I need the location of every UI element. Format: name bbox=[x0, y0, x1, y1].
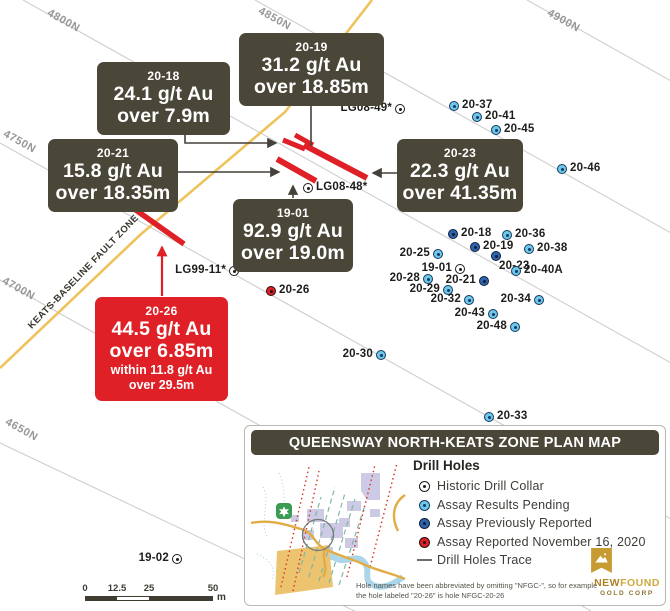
callout-within-grade: within 11.8 g/t Au bbox=[98, 363, 225, 379]
scale-segment bbox=[117, 596, 149, 601]
legend-item-label: Assay Previously Reported bbox=[437, 516, 592, 530]
legend-title: QUEENSWAY NORTH-KEATS ZONE PLAN MAP bbox=[251, 430, 659, 455]
drill-hole-label: 20-41 bbox=[485, 110, 515, 122]
drill-hole-label: 20-40A bbox=[524, 264, 563, 276]
pending-dot-icon bbox=[419, 500, 430, 511]
scale-tick: 12.5 bbox=[108, 583, 127, 594]
inset-highway-marker bbox=[276, 503, 292, 519]
drill-hole-marker-icon bbox=[266, 286, 276, 296]
legend-icon-cell bbox=[411, 536, 437, 548]
drill-hole-label: 19-02 bbox=[139, 552, 169, 564]
drill-hole-marker-icon bbox=[470, 242, 480, 252]
trace-line-icon bbox=[417, 559, 432, 561]
drill-hole-label: 20-18 bbox=[461, 227, 491, 239]
legend-icon-cell bbox=[411, 517, 437, 529]
legend-icon-cell bbox=[411, 499, 437, 511]
callout-hole-id: 20-23 bbox=[400, 146, 520, 160]
scale-tick: 0 bbox=[82, 583, 87, 594]
callout-interval: over 18.85m bbox=[242, 77, 381, 99]
drill-hole-marker-icon bbox=[491, 125, 501, 135]
legend-note: Hole names have been abbreviated by omit… bbox=[356, 581, 606, 601]
callout-interval: over 7.9m bbox=[100, 106, 227, 128]
scale-segment bbox=[149, 596, 213, 601]
callout-grade: 44.5 g/t Au bbox=[98, 319, 225, 341]
drill-hole-marker-icon bbox=[455, 264, 465, 274]
drill-hole-label: 19-01 bbox=[422, 262, 452, 274]
callout-within-interval: over 29.5m bbox=[98, 378, 225, 394]
drill-hole-marker-icon bbox=[510, 322, 520, 332]
drill-hole-marker-icon bbox=[433, 249, 443, 259]
legend-item-label: Drill Holes Trace bbox=[437, 553, 532, 567]
drill-hole-label: 20-48 bbox=[477, 320, 507, 332]
drill-hole-label: 20-34 bbox=[501, 293, 531, 305]
legend-item-reported: Assay Previously Reported bbox=[411, 514, 661, 533]
drill-hole-marker-icon bbox=[448, 229, 458, 239]
legend-panel: QUEENSWAY NORTH-KEATS ZONE PLAN MAP bbox=[244, 425, 666, 606]
callout-interval: over 18.35m bbox=[51, 183, 175, 205]
callout-20-21: 20-2115.8 g/t Auover 18.35m bbox=[48, 139, 178, 212]
callout-hole-id: 20-18 bbox=[100, 69, 227, 83]
redlegend-dot-icon bbox=[419, 537, 430, 548]
drill-hole-label: 20-26 bbox=[279, 284, 309, 296]
drill-hole-marker-icon bbox=[534, 295, 544, 305]
drill-hole-marker-icon bbox=[479, 276, 489, 286]
drill-hole-marker-icon bbox=[172, 554, 182, 564]
callout-hole-id: 19-01 bbox=[236, 206, 350, 220]
drill-hole-label: 20-45 bbox=[504, 123, 534, 135]
drill-hole-marker-icon bbox=[502, 230, 512, 240]
drill-hole-marker-icon bbox=[395, 104, 405, 114]
legend-icon-cell bbox=[411, 480, 437, 492]
callout-interval: over 41.35m bbox=[400, 183, 520, 205]
callout-grade: 22.3 g/t Au bbox=[400, 161, 520, 183]
drill-hole-label: 20-38 bbox=[537, 242, 567, 254]
legend-note-line2: the hole labeled "20-26" is hole NFGC-20… bbox=[356, 591, 606, 601]
logo-name-light: FOUND bbox=[620, 577, 660, 589]
callout-20-26: 20-2644.5 g/t Auover 6.85mwithin 11.8 g/… bbox=[95, 297, 228, 401]
drill-hole-marker-icon bbox=[488, 309, 498, 319]
reported-dot-icon bbox=[419, 518, 430, 529]
callout-grade: 92.9 g/t Au bbox=[236, 221, 350, 243]
historic-dot-icon bbox=[419, 481, 430, 492]
legend-item-pending: Assay Results Pending bbox=[411, 496, 661, 515]
drill-hole-label: 20-32 bbox=[431, 293, 461, 305]
legend-note-line1: Hole names have been abbreviated by omit… bbox=[356, 581, 606, 591]
drill-hole-label: LG08-48* bbox=[316, 181, 367, 193]
scale-bar-segments bbox=[85, 596, 213, 601]
legend-item-label: Assay Results Pending bbox=[437, 498, 570, 512]
legend-item-label: Assay Reported November 16, 2020 bbox=[437, 535, 646, 549]
callout-19-01: 19-0192.9 g/t Auover 19.0m bbox=[233, 199, 353, 272]
callout-hole-id: 20-19 bbox=[242, 40, 381, 54]
drill-hole-marker-icon bbox=[303, 183, 313, 193]
callout-20-19: 20-1931.2 g/t Auover 18.85m bbox=[239, 33, 384, 106]
drill-hole-marker-icon bbox=[449, 101, 459, 111]
gold-banner-icon bbox=[589, 548, 614, 575]
callout-20-23: 20-2322.3 g/t Auover 41.35m bbox=[397, 139, 523, 212]
plan-map: 4800N4850N4900N4750N4700N4650N KEATS-BAS… bbox=[0, 0, 670, 611]
callout-interval: over 6.85m bbox=[98, 341, 225, 363]
inset-map bbox=[251, 459, 406, 601]
drill-hole-marker-icon bbox=[484, 412, 494, 422]
scale-unit: m bbox=[217, 592, 226, 603]
scale-tick: 25 bbox=[144, 583, 155, 594]
scale-bar: 0 12.5 25 50 m bbox=[85, 583, 235, 605]
drill-hole-marker-icon bbox=[464, 295, 474, 305]
drill-hole-label: 20-43 bbox=[455, 307, 485, 319]
logo-name: NEWFOUND bbox=[589, 577, 665, 589]
callout-hole-id: 20-21 bbox=[51, 146, 175, 160]
legend-icon-cell bbox=[411, 554, 437, 566]
logo-subtitle: GOLD CORP bbox=[589, 590, 665, 597]
callout-grade: 31.2 g/t Au bbox=[242, 55, 381, 77]
drill-hole-label: 20-25 bbox=[400, 247, 430, 259]
callout-hole-id: 20-26 bbox=[98, 304, 225, 318]
legend-item-historic: Historic Drill Collar bbox=[411, 477, 661, 496]
drill-hole-label: 20-33 bbox=[497, 410, 527, 422]
company-logo: NEWFOUND GOLD CORP bbox=[589, 548, 665, 597]
drill-hole-label: 20-46 bbox=[570, 162, 600, 174]
drill-hole-label: 20-30 bbox=[343, 348, 373, 360]
callout-20-18: 20-1824.1 g/t Auover 7.9m bbox=[97, 62, 230, 135]
callout-interval: over 19.0m bbox=[236, 243, 350, 265]
drill-hole-label: 20-19 bbox=[483, 240, 513, 252]
callout-grade: 15.8 g/t Au bbox=[51, 161, 175, 183]
drill-hole-marker-icon bbox=[376, 350, 386, 360]
drill-hole-label: 20-21 bbox=[446, 274, 476, 286]
legend-section-header: Drill Holes bbox=[413, 458, 661, 473]
callout-grade: 24.1 g/t Au bbox=[100, 84, 227, 106]
logo-name-bold: NEW bbox=[594, 577, 620, 589]
scale-segment bbox=[85, 596, 117, 601]
drill-hole-marker-icon bbox=[524, 244, 534, 254]
drill-hole-marker-icon bbox=[511, 266, 521, 276]
drill-hole-label: LG99-11* bbox=[175, 264, 226, 276]
legend-item-label: Historic Drill Collar bbox=[437, 479, 544, 493]
drill-hole-marker-icon bbox=[472, 112, 482, 122]
drill-hole-marker-icon bbox=[557, 164, 567, 174]
drill-hole-label: 20-36 bbox=[515, 228, 545, 240]
